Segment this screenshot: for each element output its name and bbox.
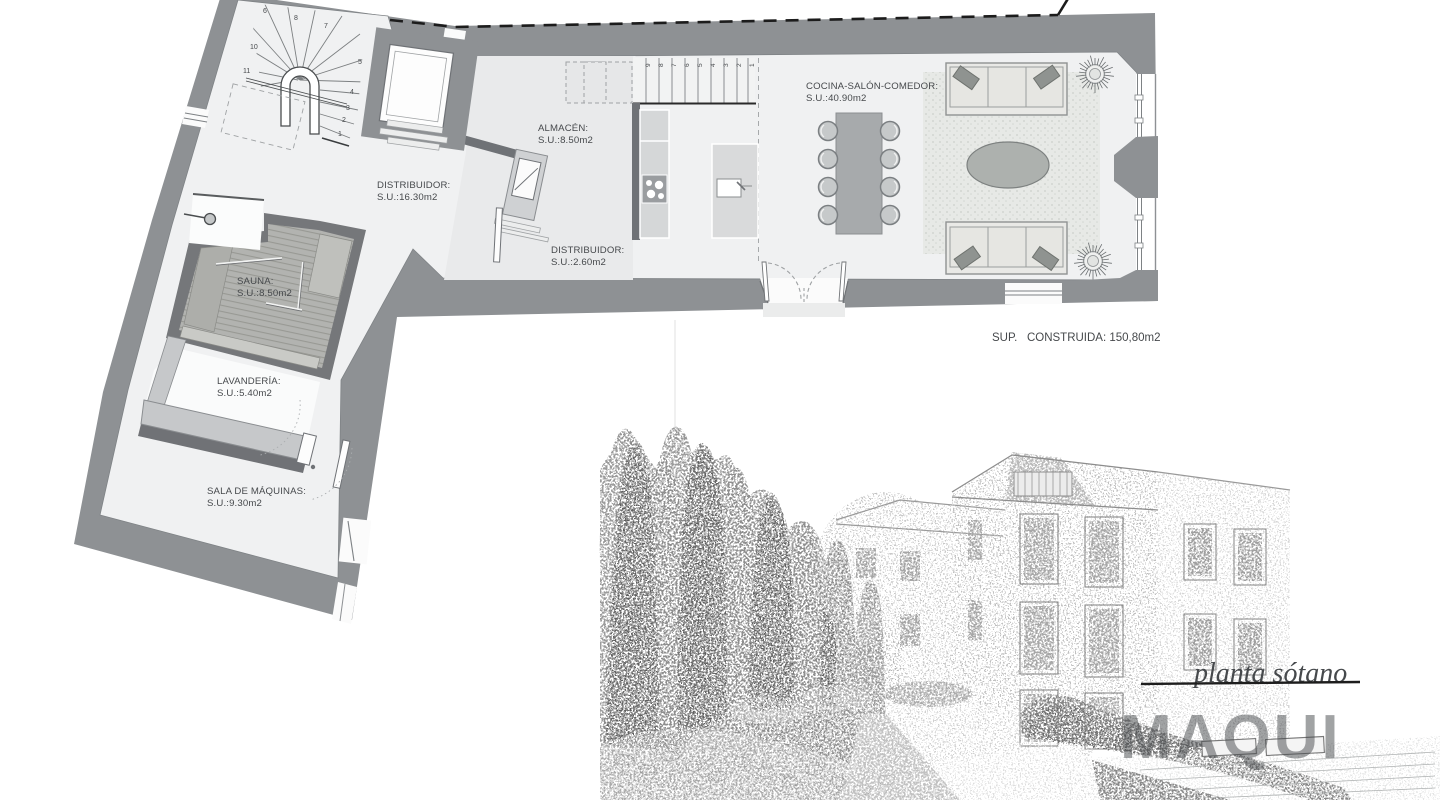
- svg-text:8: 8: [294, 15, 298, 22]
- svg-text:7: 7: [324, 23, 328, 30]
- svg-text:LAVANDERÍA:: LAVANDERÍA:: [217, 376, 281, 387]
- svg-text:SAUNA:: SAUNA:: [237, 276, 274, 287]
- svg-text:S.U.:5.40m2: S.U.:5.40m2: [217, 388, 272, 399]
- svg-text:8: 8: [658, 63, 665, 67]
- svg-text:DISTRIBUIDOR:: DISTRIBUIDOR:: [377, 180, 450, 191]
- svg-text:SUP. CONSTRUIDA: 150,80m2: SUP. CONSTRUIDA: 150,80m2: [992, 332, 1161, 344]
- svg-text:S.U.:8.50m2: S.U.:8.50m2: [237, 288, 292, 299]
- svg-text:4: 4: [710, 63, 717, 67]
- svg-text:DISTRIBUIDOR:: DISTRIBUIDOR:: [551, 245, 624, 256]
- svg-text:SALA DE MÁQUINAS:: SALA DE MÁQUINAS:: [207, 486, 306, 497]
- svg-text:S.U.:16.30m2: S.U.:16.30m2: [377, 192, 437, 203]
- svg-text:5: 5: [697, 63, 704, 67]
- svg-text:5: 5: [358, 59, 362, 66]
- svg-text:2: 2: [342, 117, 346, 124]
- svg-text:2: 2: [736, 63, 743, 67]
- svg-text:1: 1: [749, 63, 756, 67]
- svg-text:COCINA-SALÓN-COMEDOR:: COCINA-SALÓN-COMEDOR:: [806, 81, 938, 92]
- svg-text:3: 3: [723, 63, 730, 67]
- svg-text:MAQUI: MAQUI: [1120, 703, 1342, 772]
- svg-text:S.U.:40.90m2: S.U.:40.90m2: [806, 93, 866, 104]
- svg-text:10: 10: [250, 44, 258, 51]
- svg-text:7: 7: [671, 63, 678, 67]
- svg-text:ALMACÉN:: ALMACÉN:: [538, 123, 588, 134]
- svg-text:1: 1: [338, 131, 342, 138]
- svg-text:9: 9: [645, 63, 652, 67]
- svg-text:4: 4: [350, 89, 354, 96]
- svg-text:S.U.:8.50m2: S.U.:8.50m2: [538, 135, 593, 146]
- svg-text:S.U.:9.30m2: S.U.:9.30m2: [207, 498, 262, 509]
- svg-text:S.U.:2.60m2: S.U.:2.60m2: [551, 257, 606, 268]
- svg-text:6: 6: [684, 63, 691, 67]
- svg-text:3: 3: [346, 105, 350, 112]
- svg-text:6: 6: [263, 8, 267, 15]
- svg-text:11: 11: [243, 68, 250, 75]
